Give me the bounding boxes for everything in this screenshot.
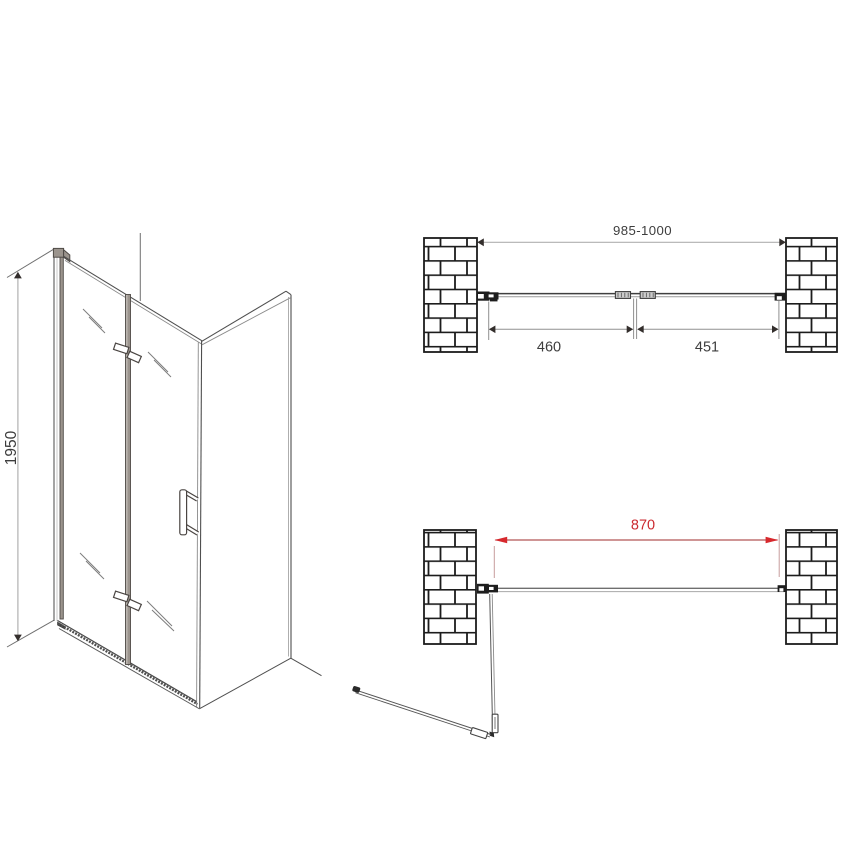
svg-text:985-1000: 985-1000: [613, 223, 672, 238]
svg-text:1950: 1950: [3, 430, 20, 465]
svg-text:460: 460: [537, 340, 561, 356]
svg-text:870: 870: [631, 518, 655, 534]
svg-text:451: 451: [695, 340, 719, 356]
